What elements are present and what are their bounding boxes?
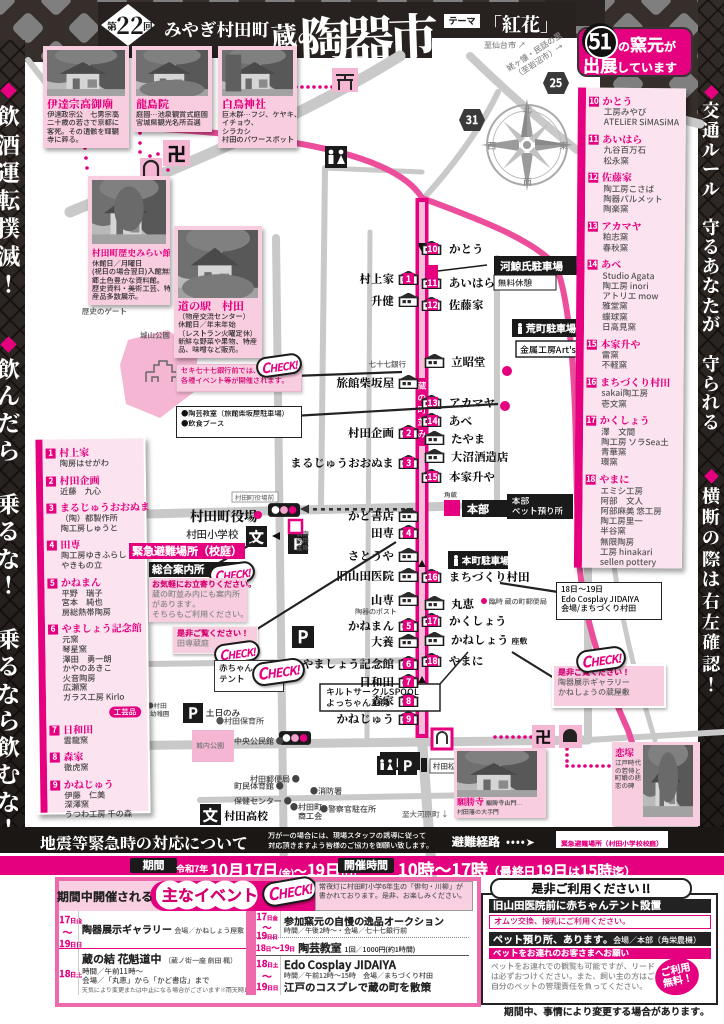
svg-text:やましょう記念館: やましょう記念館 <box>302 656 395 672</box>
svg-text:かど書店: かど書店 <box>348 508 394 524</box>
svg-text:金庫: 金庫 <box>296 542 310 552</box>
svg-text:村田町役場前: 村田町役場前 <box>235 492 274 502</box>
svg-text:日和田: 日和田 <box>360 674 395 690</box>
svg-text:●警察官駐在所: ●警察官駐在所 <box>320 804 376 815</box>
svg-text:12: 12 <box>428 299 439 311</box>
svg-text:田専: 田専 <box>371 525 394 541</box>
svg-text:まちづくり村田: まちづくり村田 <box>449 569 530 585</box>
svg-text:角蔵: 角蔵 <box>443 489 458 499</box>
svg-text:旧山田医院: 旧山田医院 <box>337 568 395 584</box>
svg-text:北: 北 <box>522 103 532 116</box>
svg-text:升健: 升健 <box>371 293 394 309</box>
svg-text:村田町役場: 村田町役場 <box>190 505 258 525</box>
svg-text:東: 東 <box>559 139 568 152</box>
svg-text:ペット預り所: ペット預り所 <box>512 505 563 517</box>
svg-text:主なイベント: 主なイベント <box>162 882 258 906</box>
svg-text:たやま: たやま <box>451 431 486 447</box>
svg-text:臨時 蔵の町郵便局: 臨時 蔵の町郵便局 <box>488 597 547 607</box>
svg-text:河鯨氏駐車場: 河鯨氏駐車場 <box>499 259 563 274</box>
svg-text:さとうや: さとうや <box>348 548 394 564</box>
svg-text:村田郵便局 ●: 村田郵便局 ● <box>250 774 300 785</box>
svg-text:歴史のゲート: 歴史のゲート <box>81 306 127 317</box>
svg-text:村田小学校: 村田小学校 <box>186 527 239 542</box>
svg-text:南: 南 <box>523 175 532 188</box>
svg-text:P: P <box>403 755 412 776</box>
svg-text:卍: 卍 <box>535 724 551 748</box>
svg-text:至仙台市 ↗: 至仙台市 ↗ <box>484 40 526 51</box>
svg-text:かくしょう: かくしょう <box>449 613 507 629</box>
svg-text:●消防署: ●消防署 <box>310 786 342 797</box>
svg-text:18: 18 <box>428 655 439 667</box>
svg-text:村田企画: 村田企画 <box>348 425 394 441</box>
svg-text:丸恵: 丸恵 <box>451 596 474 612</box>
svg-text:七十七銀行: 七十七銀行 <box>369 359 407 370</box>
svg-text:あいはら: あいはら <box>449 275 495 291</box>
svg-text:かねしょう 座敷: かねしょう 座敷 <box>451 632 528 648</box>
svg-text:村田高校: 村田高校 <box>224 808 268 824</box>
svg-text:かねじゅう: かねじゅう <box>337 711 395 727</box>
svg-text:荒町駐車場: 荒町駐車場 <box>526 320 576 335</box>
svg-text:大養: 大養 <box>370 634 394 650</box>
svg-text:かとう: かとう <box>449 241 484 257</box>
svg-text:文: 文 <box>202 805 219 826</box>
svg-text:城内公園: 城内公園 <box>196 741 225 751</box>
svg-text:佐藤家: 佐藤家 <box>449 297 484 313</box>
svg-text:17: 17 <box>428 615 438 627</box>
svg-text:25: 25 <box>550 75 563 91</box>
svg-text:立昭堂: 立昭堂 <box>451 354 486 370</box>
svg-text:1: 1 <box>406 273 411 285</box>
svg-text:10: 10 <box>428 243 439 255</box>
svg-text:卍: 卍 <box>167 140 186 167</box>
svg-text:16: 16 <box>428 571 439 583</box>
svg-text:●村田保育所: ●村田保育所 <box>216 716 264 727</box>
svg-text:無料休憩: 無料休憩 <box>497 277 533 289</box>
svg-text:保健センター ●: 保健センター ● <box>234 796 292 807</box>
svg-text:7: 7 <box>406 676 411 688</box>
svg-text:中央公民館 ●: 中央公民館 ● <box>234 736 284 747</box>
svg-text:山専: 山専 <box>371 592 394 608</box>
svg-text:金属工房Art's: 金属工房Art's <box>520 343 577 356</box>
svg-text:まるじゅうおおぬま: まるじゅうおおぬま <box>291 455 395 471</box>
svg-text:14: 14 <box>428 415 438 427</box>
svg-text:かねまん: かねまん <box>348 618 394 634</box>
svg-text:5: 5 <box>405 620 411 632</box>
svg-text:陶器のポスト: 陶器のポスト <box>355 607 397 617</box>
svg-text:やまに: やまに <box>449 653 484 669</box>
svg-text:西: 西 <box>487 139 496 152</box>
svg-text:11: 11 <box>428 277 438 289</box>
svg-text:大沼酒造店: 大沼酒造店 <box>450 449 509 465</box>
svg-text:31: 31 <box>465 112 479 128</box>
svg-text:本家升や: 本家升や <box>449 469 495 485</box>
svg-text:本部: 本部 <box>466 501 489 517</box>
svg-text:幼稚園: 幼稚園 <box>150 708 170 718</box>
svg-text:P: P <box>298 624 309 648</box>
svg-text:至大河原町 ↓: 至大河原町 ↓ <box>402 809 449 820</box>
svg-text:旅館柴坂屋: 旅館柴坂屋 <box>337 375 395 391</box>
svg-text:あべ: あべ <box>449 413 472 429</box>
svg-text:城山公園: 城山公園 <box>140 330 170 341</box>
svg-text:森家: 森家 <box>371 693 394 709</box>
svg-text:4: 4 <box>406 527 411 539</box>
svg-text:3: 3 <box>405 457 411 469</box>
svg-text:村上家: 村上家 <box>360 271 395 287</box>
svg-text:P: P <box>188 703 198 724</box>
svg-text:本町駐車場: 本町駐車場 <box>461 553 510 567</box>
svg-text:アカマヤ: アカマヤ <box>449 395 495 411</box>
svg-text:15: 15 <box>428 471 438 483</box>
